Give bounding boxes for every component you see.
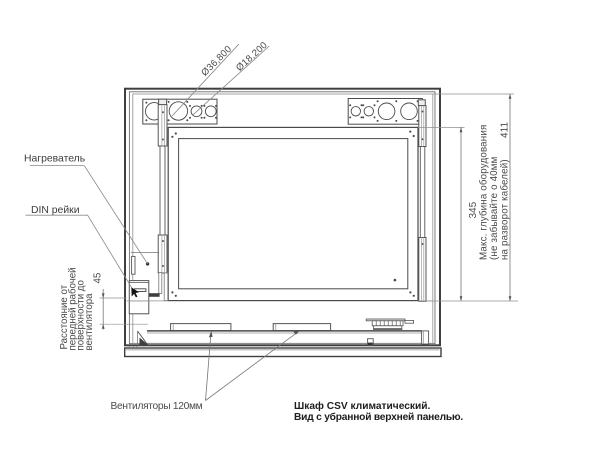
svg-text:Вид с убранной верхней панелью: Вид с убранной верхней панелью.: [294, 411, 463, 423]
svg-text:Нагреватель: Нагреватель: [24, 153, 85, 164]
svg-text:на разворот кабелей): на разворот кабелей): [500, 159, 511, 260]
svg-text:вентилятора: вентилятора: [84, 293, 95, 351]
svg-text:DIN рейки: DIN рейки: [31, 205, 80, 216]
svg-text:Макс. глубина оборудования: Макс. глубина оборудования: [479, 125, 490, 260]
svg-text:345: 345: [468, 201, 479, 218]
svg-text:Вентиляторы 120мм: Вентиляторы 120мм: [111, 401, 203, 412]
svg-text:(не забывайте о 40мм: (не забывайте о 40мм: [489, 156, 500, 260]
svg-text:45: 45: [93, 273, 104, 284]
svg-text:Шкаф CSV климатический.: Шкаф CSV климатический.: [294, 400, 431, 412]
svg-text:411: 411: [500, 122, 511, 138]
